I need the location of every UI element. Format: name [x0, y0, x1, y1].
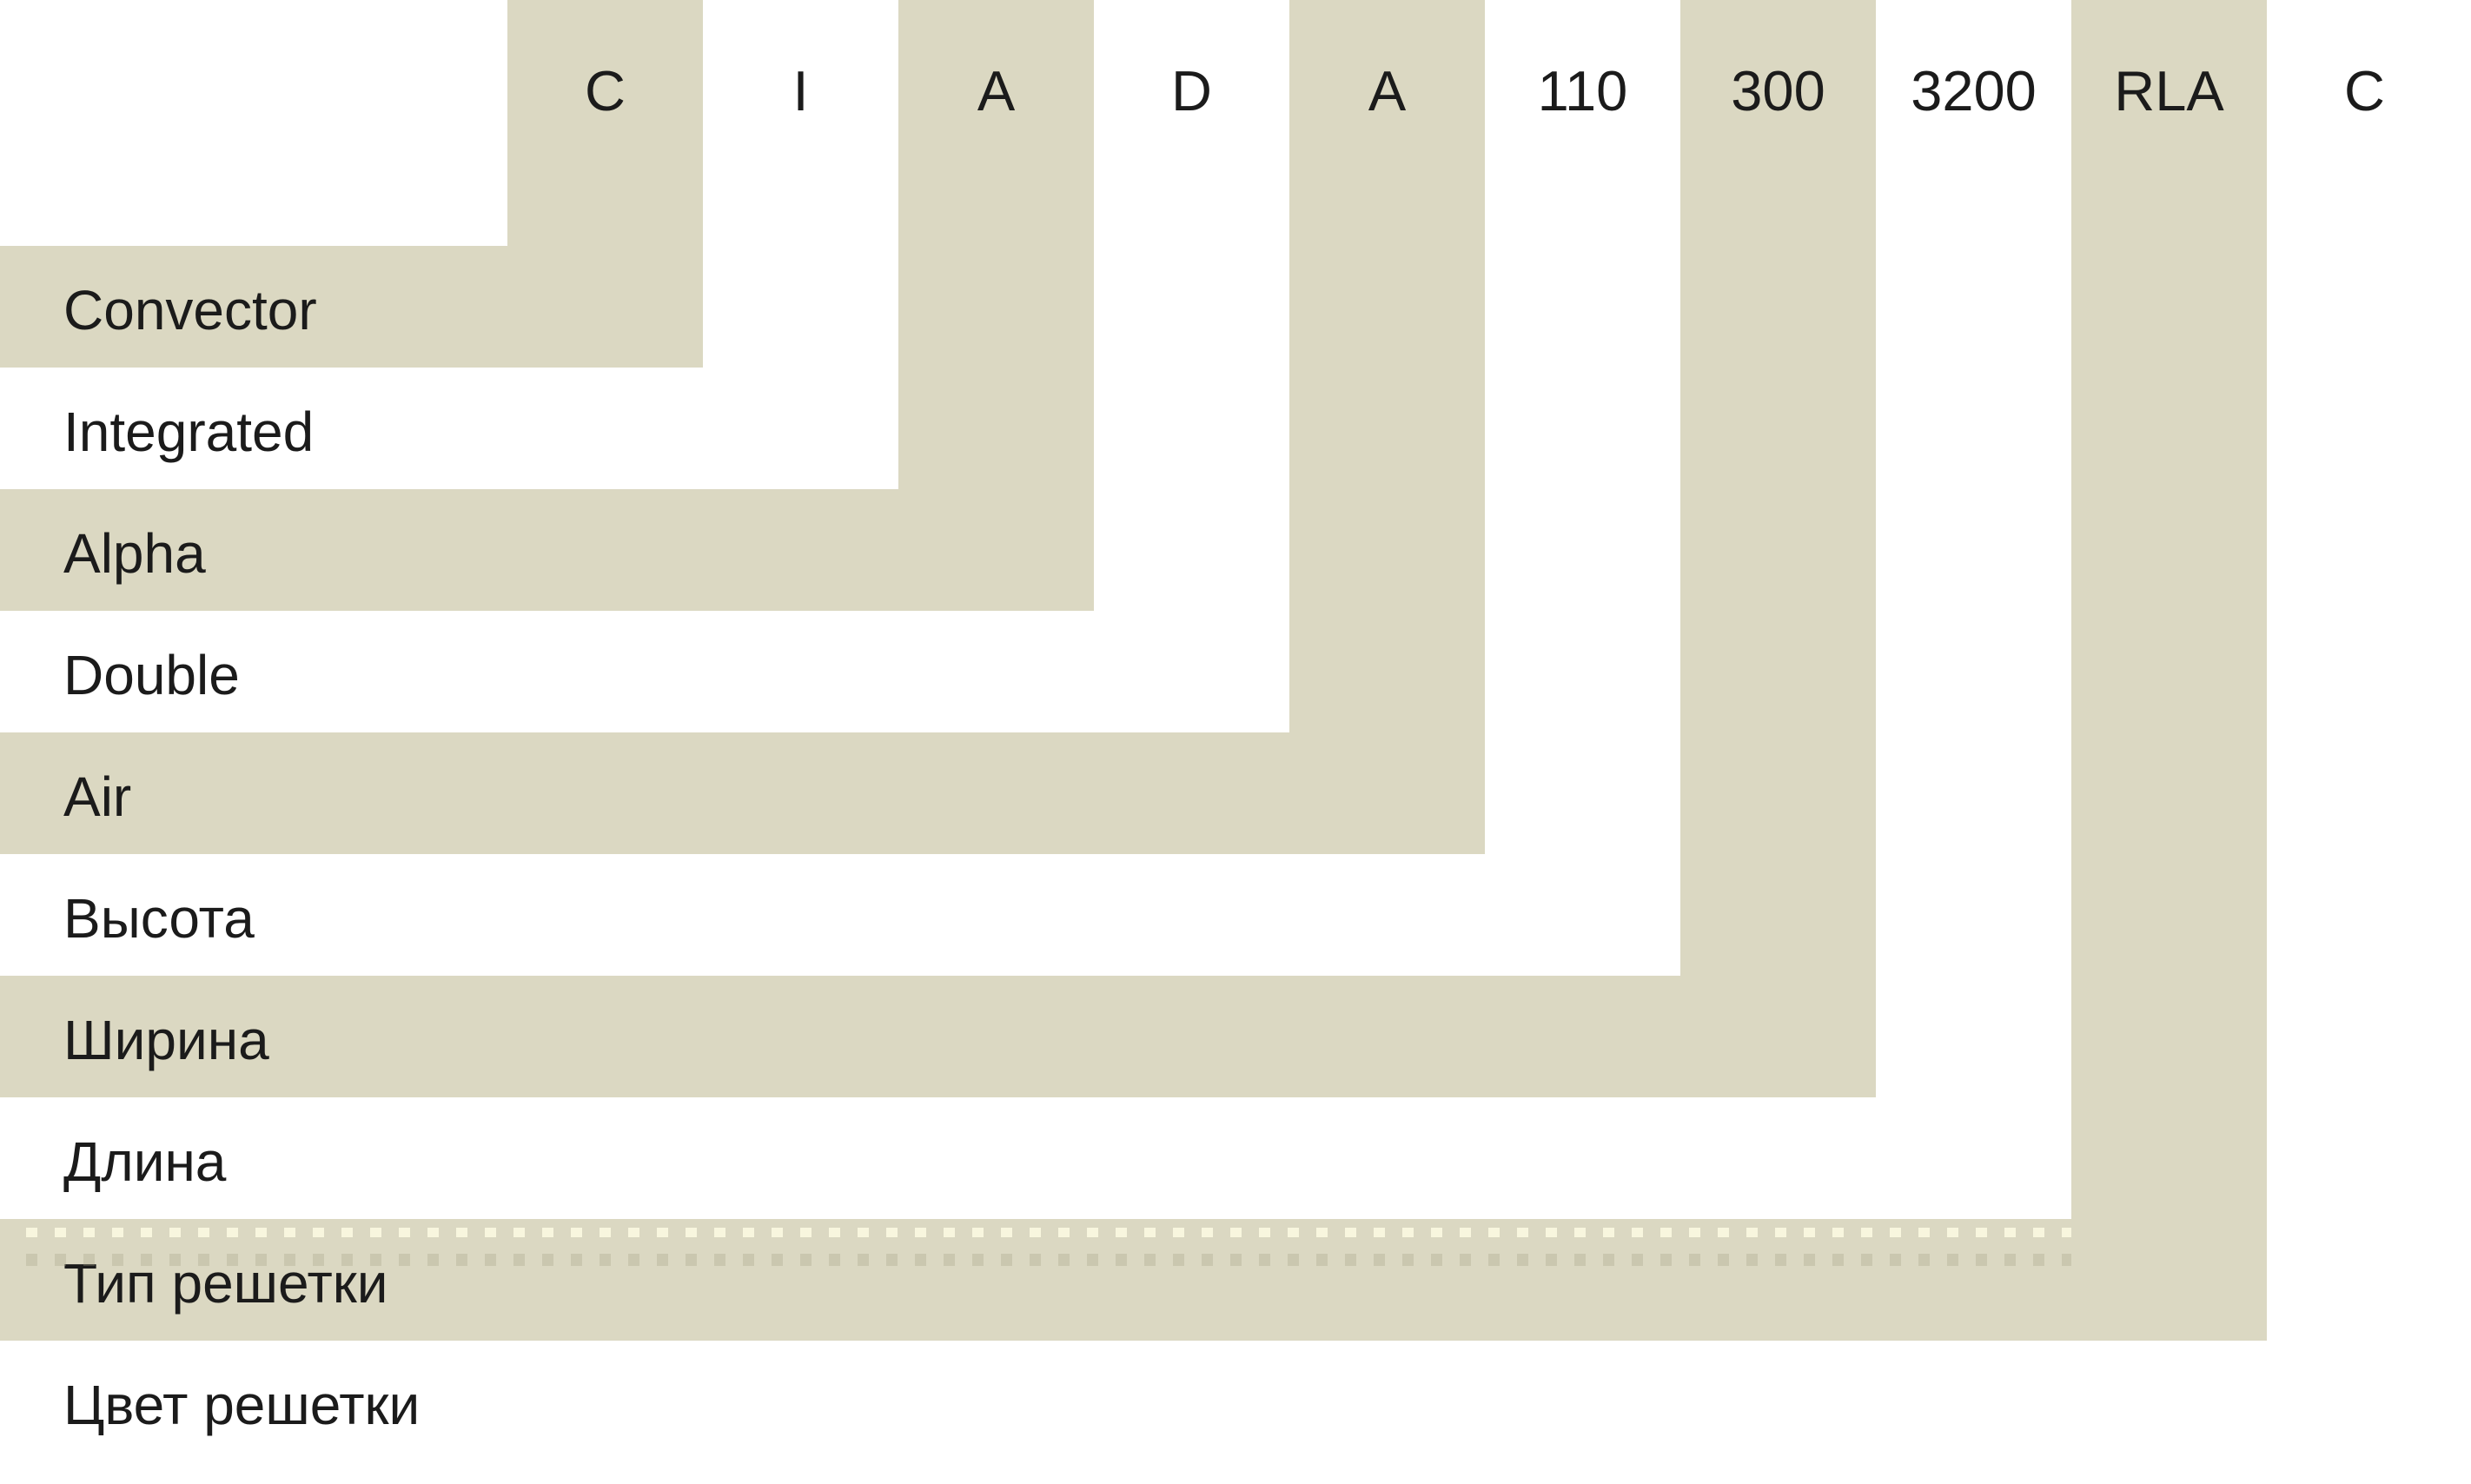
- code-cell: D: [1094, 48, 1289, 135]
- grille-type-dashed-line: [26, 1228, 2071, 1237]
- row-label: Высота: [0, 884, 255, 946]
- row-label: Alpha: [0, 519, 206, 581]
- code-cell: A: [898, 48, 1094, 135]
- code-column-band: [1876, 0, 2071, 1219]
- code-column-band: [2071, 0, 2267, 1341]
- code-column-band: [1680, 0, 1876, 1097]
- code-cell: I: [703, 48, 898, 135]
- row-label: Double: [0, 640, 240, 703]
- row-band: Высота: [0, 854, 1680, 976]
- row-label: Цвет решетки: [0, 1370, 420, 1433]
- row-band: Тип решетки: [0, 1219, 2267, 1341]
- row-band: Convector: [0, 246, 703, 368]
- row-band: Double: [0, 611, 1289, 732]
- code-cell: RLA: [2071, 48, 2267, 135]
- code-column-band: [2267, 0, 2462, 1462]
- row-band: Цвет решетки: [0, 1341, 2469, 1462]
- row-band: Alpha: [0, 489, 1094, 611]
- code-cell: 110: [1485, 48, 1680, 135]
- row-band: Integrated: [0, 368, 898, 489]
- row-label: Air: [0, 762, 131, 825]
- grille-type-dashed-line: [26, 1254, 2071, 1266]
- row-label: Convector: [0, 275, 317, 338]
- row-band: Air: [0, 732, 1485, 854]
- code-cell: 300: [1680, 48, 1876, 135]
- code-cell: 3200: [1876, 48, 2071, 135]
- row-band: Ширина: [0, 976, 1876, 1097]
- row-label: Integrated: [0, 397, 314, 460]
- row-band: Длина: [0, 1097, 2071, 1219]
- nomenclature-diagram: Convector Integrated Alpha Double Air Вы…: [0, 0, 2471, 1484]
- row-label: Ширина: [0, 1005, 269, 1068]
- code-cell: C: [507, 48, 703, 135]
- code-column-band: [1485, 0, 1680, 976]
- code-cell: A: [1289, 48, 1485, 135]
- row-label: Длина: [0, 1127, 226, 1189]
- code-cell: C: [2267, 48, 2462, 135]
